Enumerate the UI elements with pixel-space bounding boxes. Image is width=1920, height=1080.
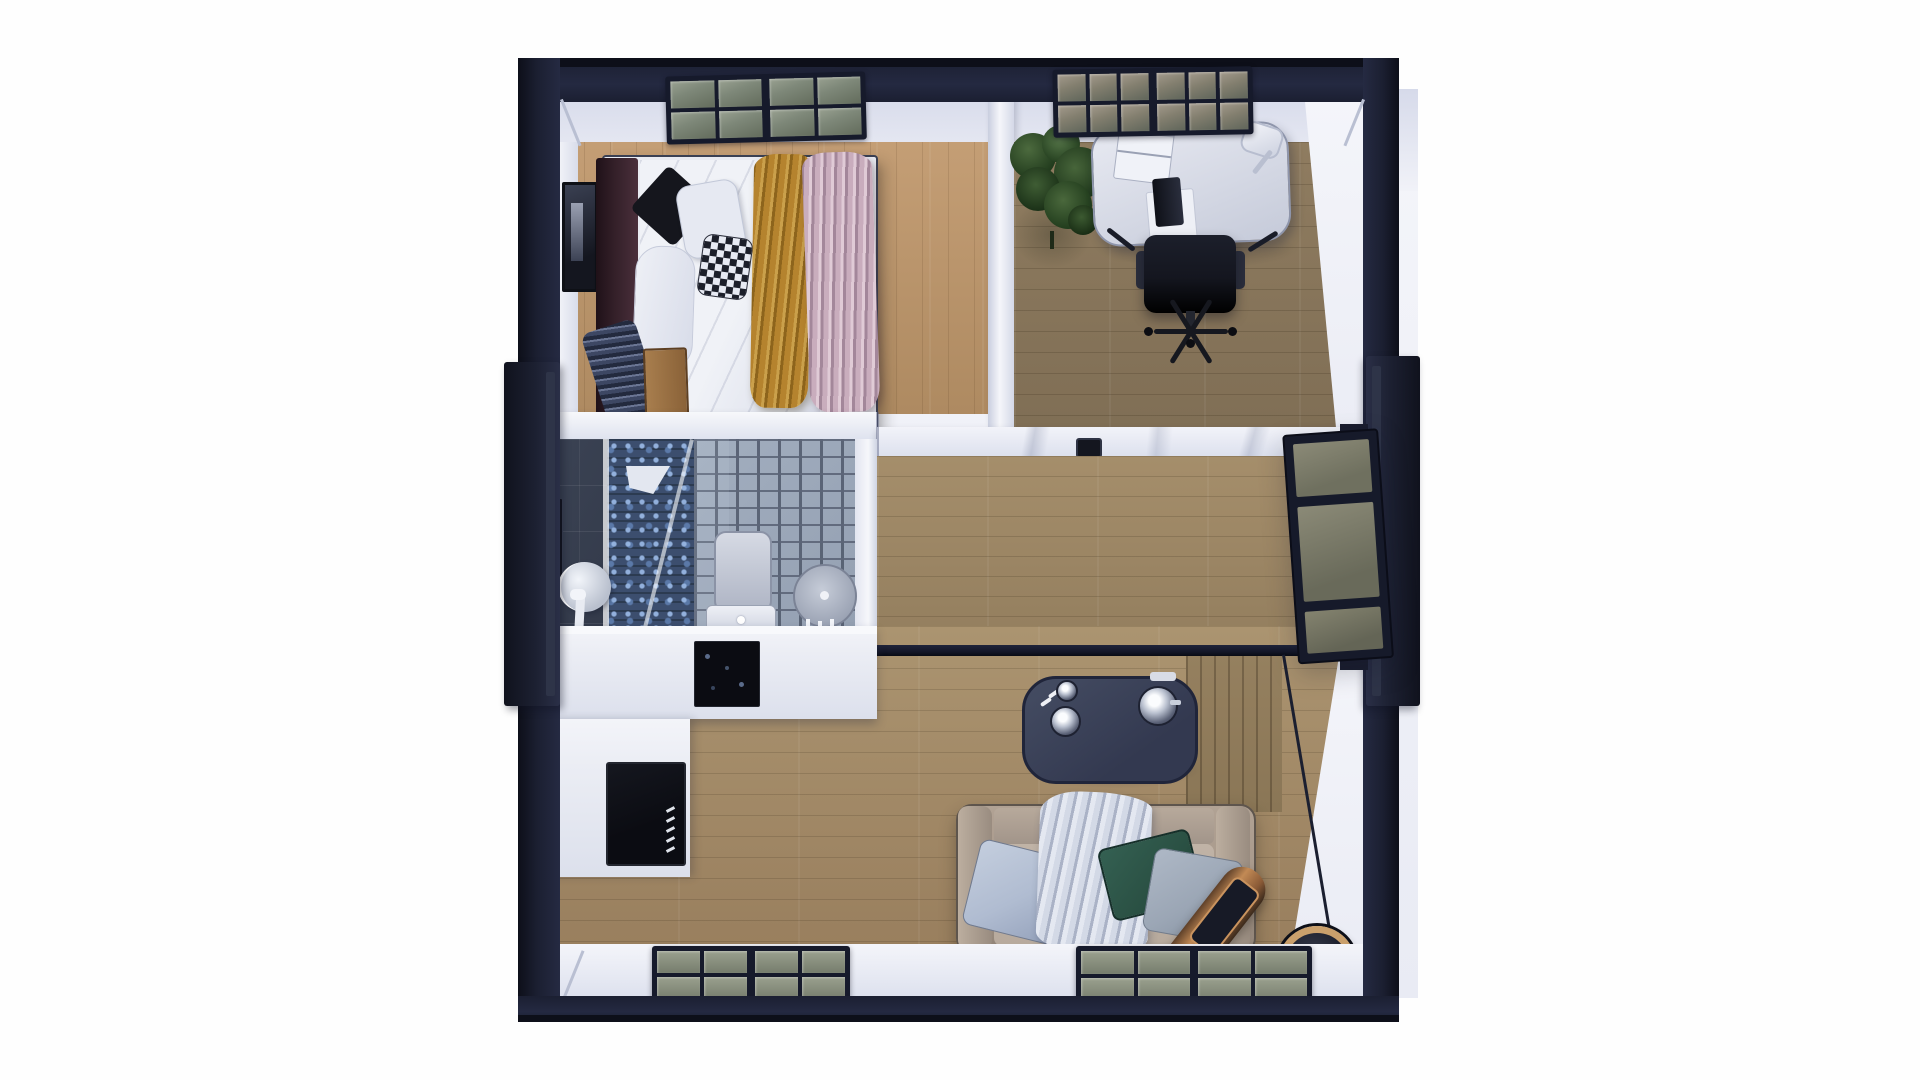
throw-pink [801, 151, 880, 413]
faucet-head [570, 589, 586, 600]
left-door-frame [504, 362, 560, 706]
module-divider-track [860, 645, 1368, 656]
pillow-checkered [696, 233, 754, 301]
bed-bench [643, 347, 689, 418]
door-glass-pane [1297, 502, 1379, 602]
window-section [1156, 71, 1248, 131]
outer-wall-top [518, 58, 1399, 102]
window-section [1058, 73, 1150, 133]
window-section [1198, 951, 1307, 1001]
floor-plan-render [0, 0, 1920, 1080]
wall-bedroom-bathroom [545, 412, 877, 439]
office-chair [1136, 235, 1246, 347]
window-section [769, 77, 861, 137]
office-window [1052, 66, 1253, 137]
table-tray-notch [1150, 672, 1176, 681]
open-glass-door [1282, 428, 1394, 664]
wall-art-frame [562, 182, 598, 292]
kettle-spout [1170, 700, 1181, 705]
chair-seat [1144, 235, 1236, 313]
window-section [670, 79, 762, 139]
wood-feature-wall [1186, 656, 1282, 812]
door-glass-pane [1305, 606, 1384, 653]
window-section [657, 951, 747, 999]
cup [1050, 706, 1081, 737]
small-bowl [1056, 680, 1078, 702]
kettle [1138, 686, 1178, 726]
potted-plant [1004, 125, 1104, 245]
wall-art-print [571, 203, 583, 261]
oven [606, 762, 686, 866]
house [504, 49, 1420, 1024]
chair-wheel [1186, 339, 1195, 348]
bathroom-right-partition [855, 439, 877, 630]
toilet-lid [714, 531, 772, 613]
chair-wheel [1144, 327, 1153, 336]
outer-wall-bottom [518, 996, 1399, 1022]
door-glass-pane [1293, 439, 1372, 497]
plant-stem [1050, 231, 1054, 249]
bedroom-window [665, 71, 867, 144]
window-section [755, 951, 845, 999]
sliding-door-handle [1076, 438, 1102, 458]
keyboard-stack [1152, 177, 1184, 227]
counter-top-highlight [545, 626, 877, 634]
chair-wheel [1228, 327, 1237, 336]
window-section [1081, 951, 1190, 1001]
cooktop-panel [694, 641, 760, 707]
